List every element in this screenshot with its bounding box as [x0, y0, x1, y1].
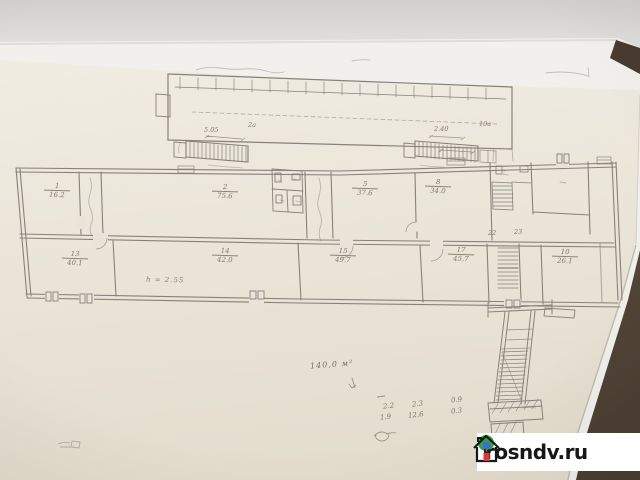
- watermark-site-text: rosndv.ru: [485, 440, 588, 464]
- photo-vignette: [0, 0, 640, 480]
- watermark: rosndv.ru: [477, 433, 640, 471]
- floor-plan-photo: 116.2 275.6 537.6 834.0 1340.1 1442.0 15…: [0, 0, 640, 480]
- floor-plan-drawing: [0, 0, 640, 480]
- house-icon: [473, 433, 500, 463]
